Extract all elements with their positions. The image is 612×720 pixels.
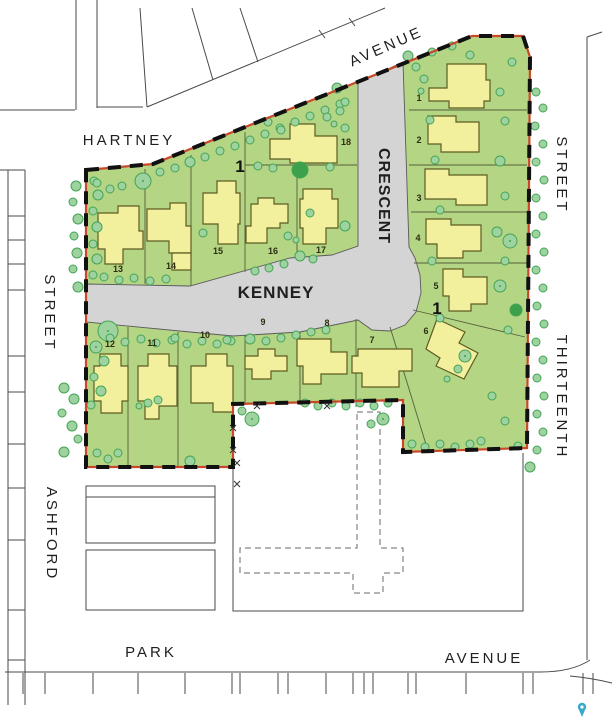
tree [436, 440, 444, 448]
tree [408, 440, 416, 448]
tree [488, 392, 496, 400]
tree [501, 192, 509, 200]
tree [58, 409, 66, 417]
tree [106, 185, 114, 193]
tree [540, 320, 548, 328]
tree [341, 124, 349, 132]
tree [262, 337, 270, 345]
tree [295, 251, 305, 261]
tree [540, 248, 548, 256]
tree [477, 437, 485, 445]
lot-number-11: 11 [147, 338, 157, 348]
tree [533, 446, 541, 454]
tree [431, 156, 439, 164]
tree [92, 254, 102, 264]
lot-number-9: 9 [260, 317, 265, 327]
street-right-label: STREET [553, 136, 570, 213]
tree [504, 326, 512, 334]
tree [89, 240, 97, 248]
tree [539, 140, 547, 148]
tree [136, 403, 142, 409]
tree [540, 392, 548, 400]
tree [280, 260, 288, 268]
tree [72, 248, 82, 258]
hartney-label: HARTNEY [83, 132, 175, 149]
tree [87, 401, 95, 409]
tree [539, 212, 547, 220]
lot-number-1: 1 [416, 93, 421, 103]
neighbor-building [86, 550, 215, 610]
tree [454, 365, 462, 373]
tree [73, 282, 83, 292]
lot-number-14: 14 [166, 261, 176, 271]
tree [532, 88, 540, 96]
tree [146, 277, 154, 285]
lot-number-10: 10 [200, 330, 210, 340]
tree [292, 331, 300, 339]
tree [171, 164, 179, 172]
tree [156, 168, 164, 176]
tree [293, 237, 299, 243]
tree [130, 274, 138, 282]
tree [532, 230, 540, 238]
block-number: 1 [432, 299, 441, 318]
tree [277, 334, 285, 342]
lot-number-16: 16 [268, 246, 278, 256]
tree [185, 157, 195, 167]
tree [539, 104, 547, 112]
tree-center-dot [499, 285, 501, 287]
kenney-label: KENNEY [238, 283, 315, 302]
ashford-label: ASHFORD [43, 487, 60, 581]
tree [171, 334, 179, 342]
tree [501, 257, 509, 265]
tree [201, 153, 209, 161]
tree [89, 207, 97, 215]
lot-number-15: 15 [213, 246, 223, 256]
tree [199, 229, 207, 237]
tree [137, 335, 145, 343]
lot-number-13: 13 [113, 264, 123, 274]
avenue-bottom-label: AVENUE [445, 650, 524, 667]
tree [277, 126, 285, 134]
tree-center-dot [95, 346, 97, 348]
tree [104, 455, 112, 463]
lot-number-18: 18 [341, 137, 351, 147]
tree [100, 273, 108, 281]
tree [370, 402, 378, 410]
lot-number-17: 17 [316, 245, 326, 255]
tree [93, 449, 101, 457]
tree [118, 182, 126, 190]
tree [466, 51, 474, 59]
site-plan-svg: HARTNEYAVENUECRESCENTKENNEYSTREETTHIRTEE… [0, 0, 612, 720]
tree [307, 328, 315, 336]
tree [238, 407, 246, 415]
tree [269, 164, 277, 172]
tree [261, 130, 269, 138]
tree [69, 394, 79, 404]
tree [532, 158, 540, 166]
tree [539, 428, 547, 436]
tree [444, 376, 450, 382]
tree [508, 58, 516, 66]
tree [412, 63, 420, 71]
tree [69, 265, 77, 273]
tree [73, 214, 83, 224]
tree [426, 116, 434, 124]
tree [216, 147, 224, 155]
tree [89, 271, 97, 279]
tree [93, 179, 101, 187]
tree-center-dot [509, 240, 511, 242]
tree-center-dot [142, 180, 144, 182]
tree [525, 462, 535, 472]
lot-number-2: 2 [416, 135, 421, 145]
tree [532, 266, 540, 274]
tree [96, 386, 106, 396]
tree [162, 275, 170, 283]
tree [323, 113, 331, 121]
house-lot-3 [425, 169, 487, 205]
tree [291, 118, 299, 126]
park-label: PARK [125, 644, 177, 661]
tree [251, 267, 259, 275]
tree [540, 176, 548, 184]
tree [501, 117, 509, 125]
tree [67, 421, 77, 431]
street-left-label: STREET [41, 274, 58, 351]
tree-center-dot [382, 418, 384, 420]
tree [231, 142, 239, 150]
tree [70, 232, 78, 240]
tree [154, 396, 162, 404]
tree-center-dot [251, 418, 253, 420]
tree [74, 435, 82, 443]
lot-number-8: 8 [324, 318, 329, 328]
tree [495, 156, 505, 166]
tree [501, 417, 509, 425]
tree [185, 456, 195, 466]
tree [306, 112, 314, 120]
tree [121, 338, 129, 346]
tree [367, 420, 375, 428]
tree [340, 221, 350, 231]
tree [254, 162, 262, 170]
evergreen-tree [292, 162, 308, 178]
tree [532, 338, 540, 346]
thirteenth-label: THIRTEENTH [553, 335, 570, 460]
evergreen-tree [510, 304, 522, 316]
tree [223, 336, 231, 344]
tree [93, 190, 103, 200]
site-plan-map: HARTNEYAVENUECRESCENTKENNEYSTREETTHIRTEE… [0, 0, 612, 720]
tree [114, 449, 122, 457]
tree [420, 75, 428, 83]
tree [539, 356, 547, 364]
map-pin-dot [580, 705, 583, 708]
neighbor-building [86, 497, 215, 543]
tree [183, 340, 191, 348]
tree [341, 98, 349, 106]
tree [92, 222, 102, 232]
tree [99, 356, 109, 366]
tree [306, 209, 314, 217]
lot-number-3: 3 [416, 193, 421, 203]
neighbor-building [86, 486, 215, 497]
lot-number-4: 4 [415, 233, 420, 243]
tree-center-dot [107, 330, 109, 332]
tree [246, 136, 254, 144]
tree [533, 302, 541, 310]
tree [90, 373, 98, 381]
tree [331, 121, 337, 127]
tree [466, 440, 474, 448]
tree [71, 181, 81, 191]
crescent-label: CRESCENT [375, 148, 392, 244]
tree [213, 340, 221, 348]
tree [115, 276, 123, 284]
tree [284, 232, 292, 240]
tree [59, 383, 69, 393]
tree [144, 399, 152, 407]
tree [533, 410, 541, 418]
tree [326, 163, 334, 171]
tree [265, 264, 273, 272]
lot-number-6: 6 [423, 326, 428, 336]
block-number: 1 [235, 157, 244, 176]
tree [539, 284, 547, 292]
tree [336, 107, 344, 115]
tree [532, 194, 540, 202]
tree [309, 255, 317, 263]
tree [436, 206, 444, 214]
tree [245, 334, 255, 344]
tree [69, 198, 77, 206]
tree [59, 447, 69, 457]
lot-number-12: 12 [105, 339, 115, 349]
tree [492, 227, 502, 237]
lot-number-7: 7 [369, 335, 374, 345]
tree [428, 257, 436, 265]
tree [533, 374, 541, 382]
tree-center-dot [464, 355, 466, 357]
tree [496, 88, 504, 96]
tree [531, 122, 539, 130]
lot-number-5: 5 [433, 281, 438, 291]
